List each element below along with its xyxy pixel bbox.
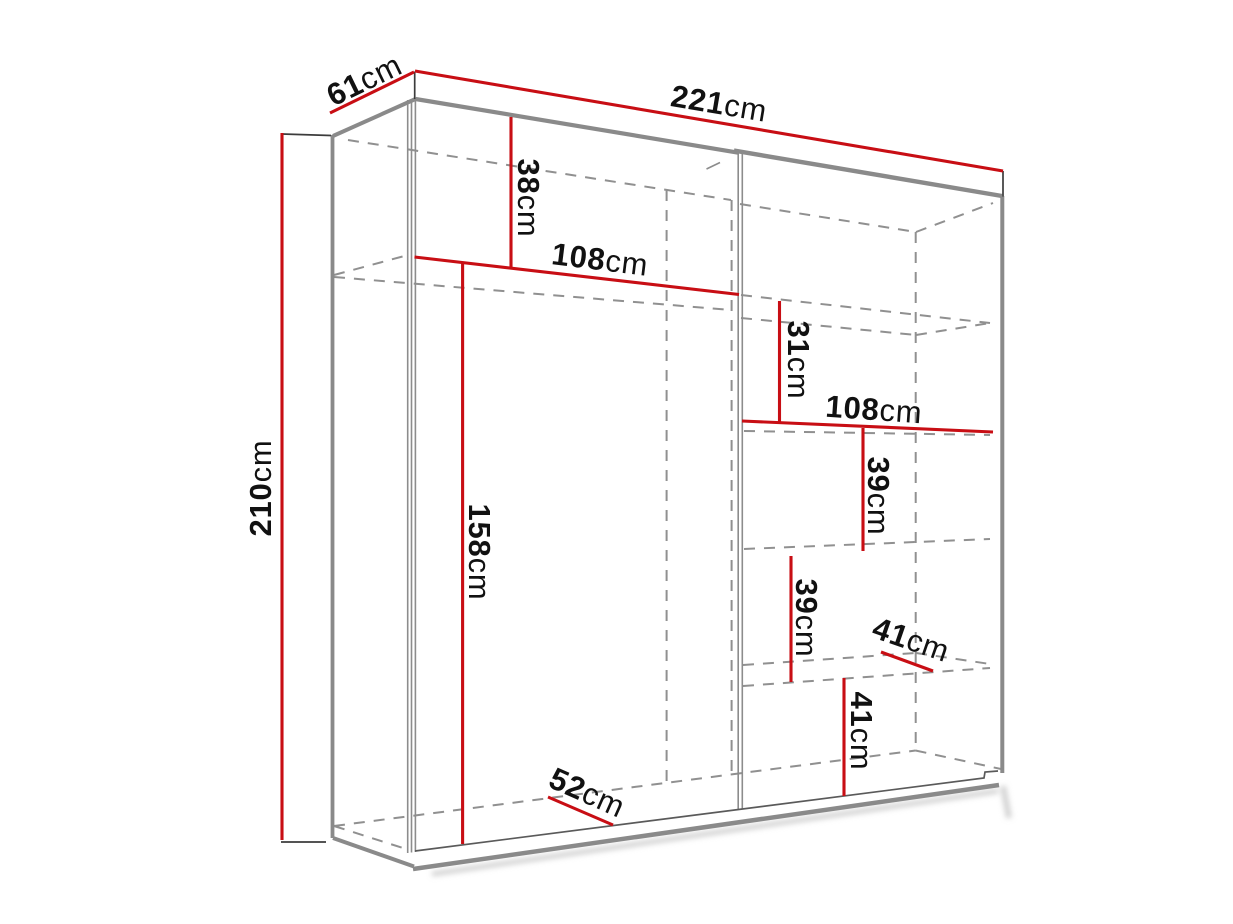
svg-text:41cm: 41cm — [844, 691, 879, 770]
svg-text:210cm: 210cm — [243, 439, 278, 536]
svg-text:31cm: 31cm — [781, 320, 816, 399]
svg-text:39cm: 39cm — [789, 578, 824, 657]
svg-text:108cm: 108cm — [824, 389, 923, 431]
svg-text:158cm: 158cm — [462, 503, 497, 600]
svg-text:39cm: 39cm — [861, 456, 896, 535]
svg-text:38cm: 38cm — [511, 158, 546, 237]
